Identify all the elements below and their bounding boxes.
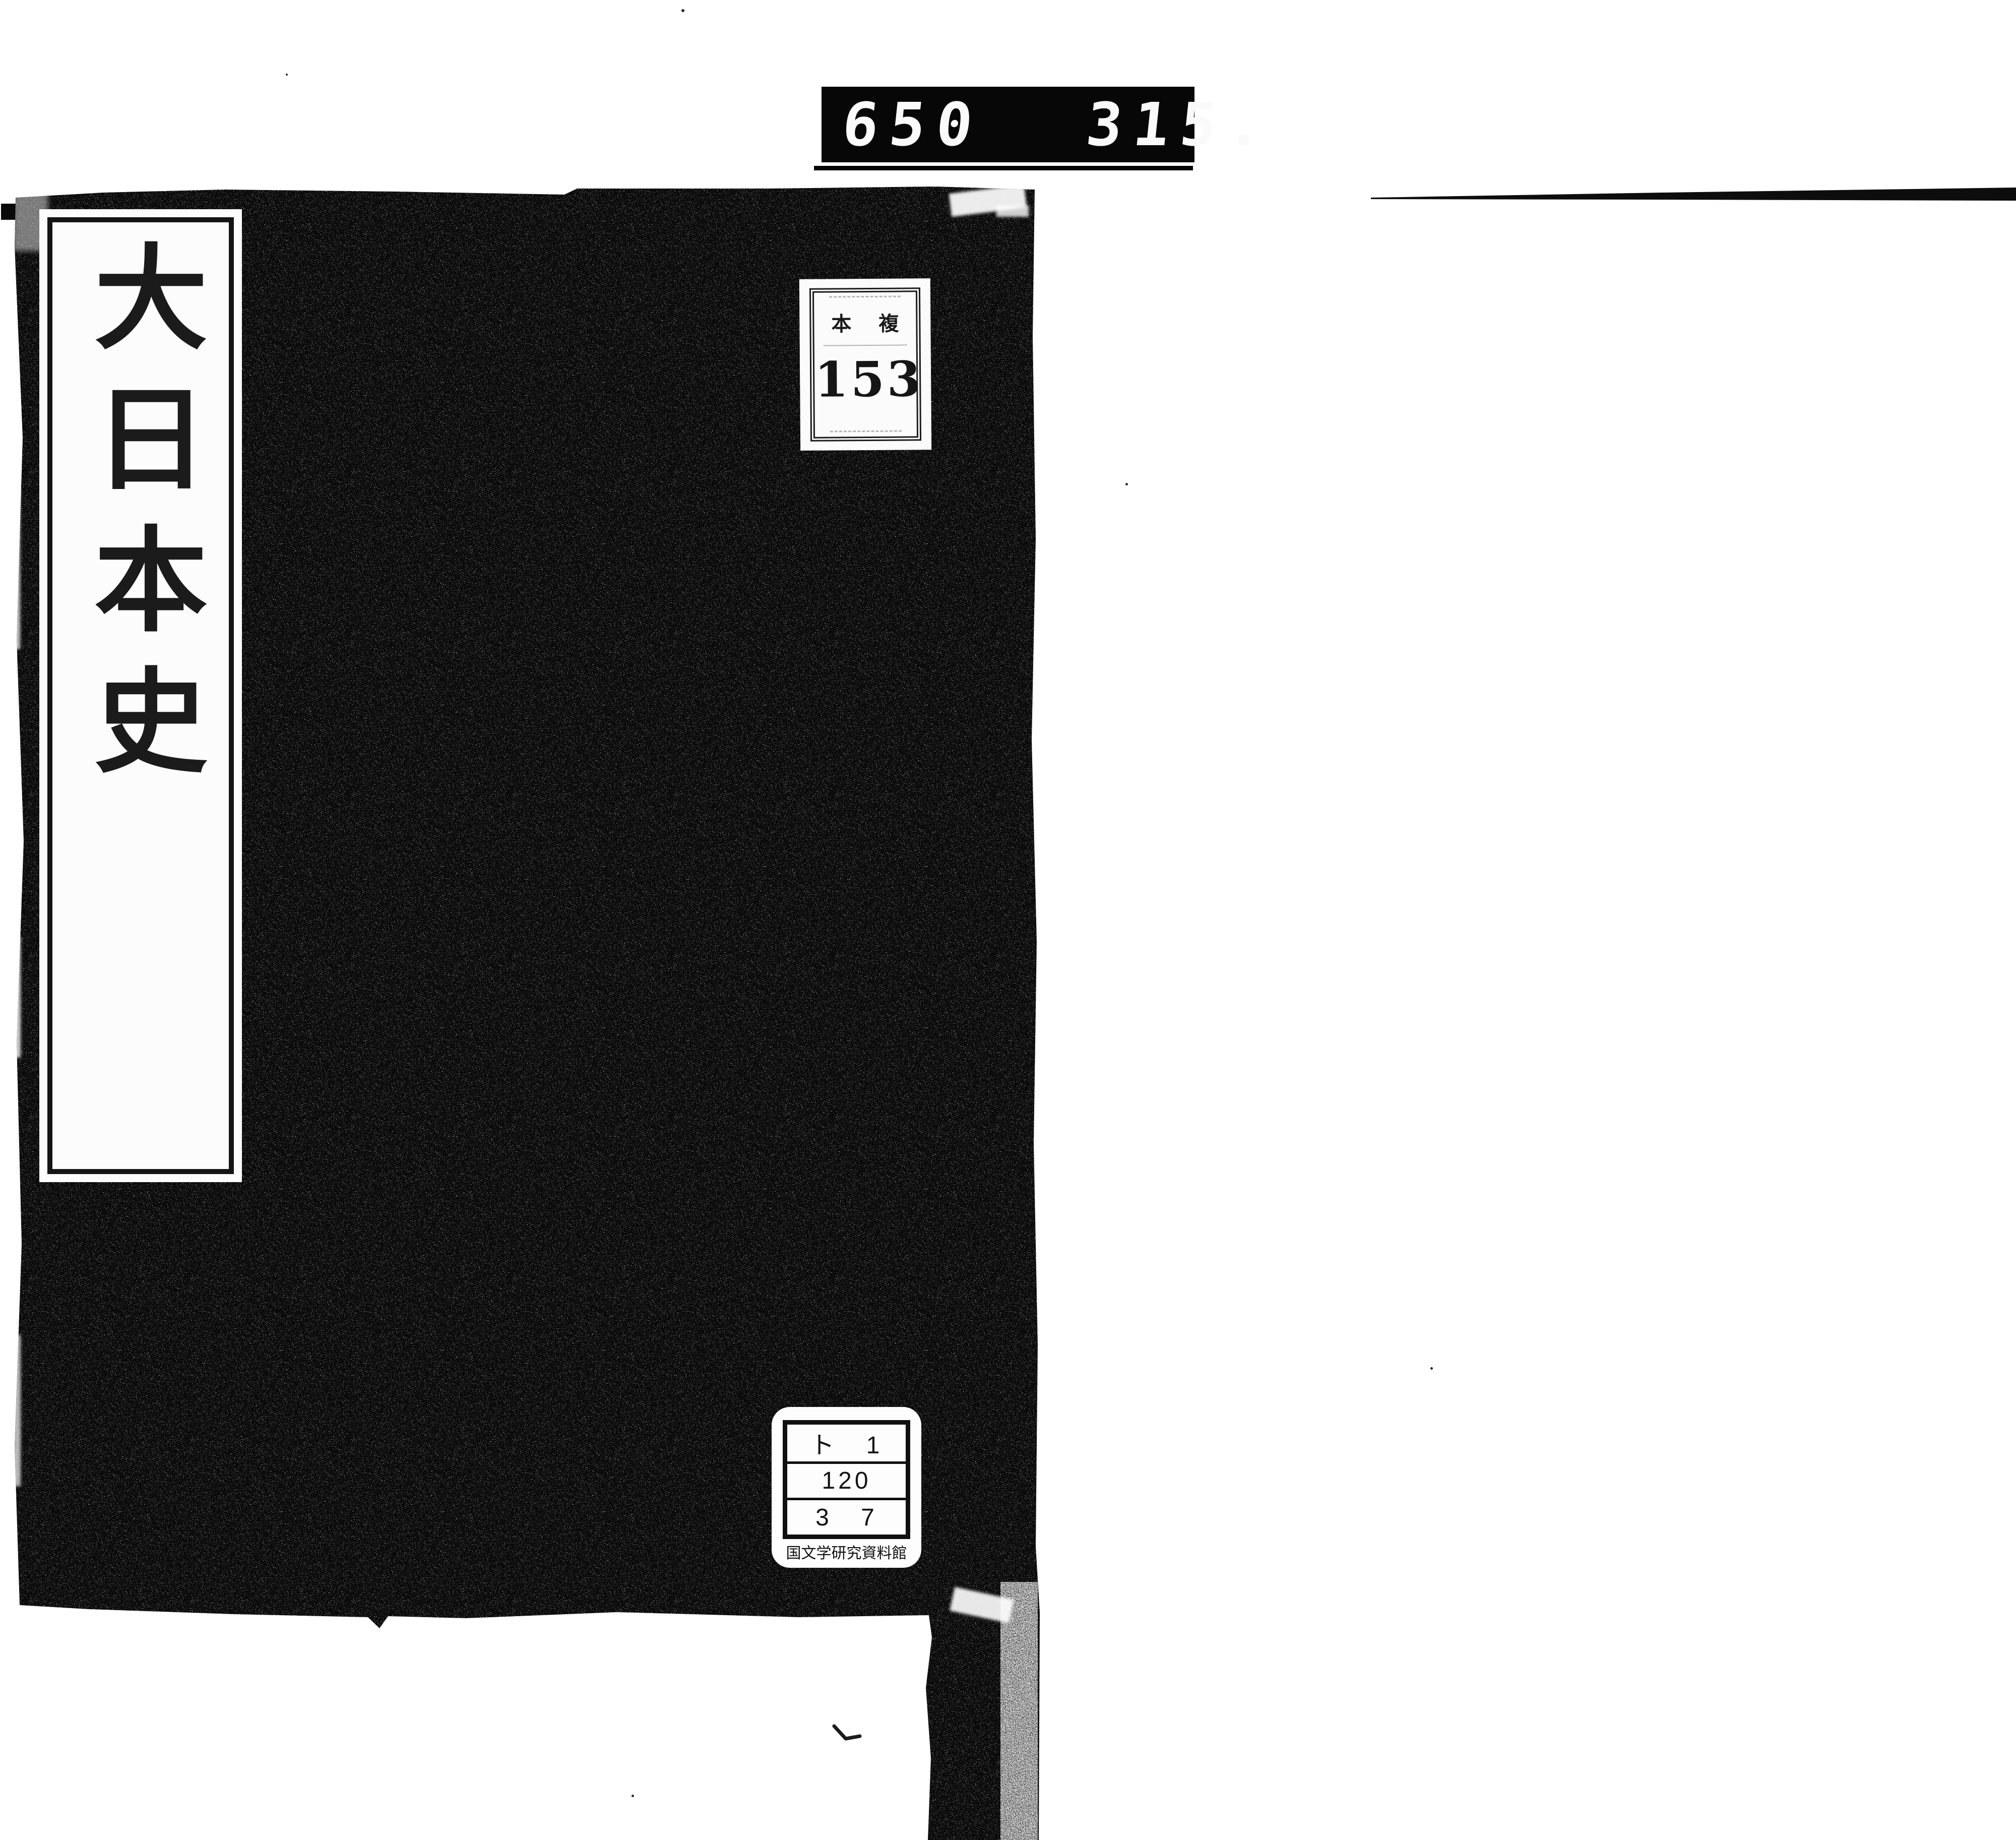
wear-patch [996,206,1029,217]
wear-patch [15,937,21,1058]
dust-speck [1125,483,1128,485]
copy-number-label: 本 複 153 [799,278,931,451]
dust-speck [632,1795,634,1797]
copy-label-left-char: 本 [831,308,851,337]
call-number-row-1: ト 1 [787,1425,906,1461]
copy-number: 153 [814,350,917,408]
institution-name: 国文学研究資料館 [772,1541,921,1563]
facing-page-edge-line [1361,181,2016,212]
call-number-row-2: 120 [787,1461,906,1498]
copy-label-frame: 本 複 153 [809,287,921,442]
library-call-number-label: ト 1 120 3 7 国文学研究資料館 [772,1407,921,1568]
copy-label-divider [824,344,907,346]
registration-dashes [830,431,901,433]
dust-speck [1430,1367,1433,1370]
registration-dashes [829,296,900,298]
counter-digits-left: 650 [840,95,987,154]
counter-digits-right: 315. [1084,95,1278,154]
book-title: 大日本史 [84,238,198,803]
frame-counter-display: 650 315. [822,87,1194,162]
call-number-row-3: 3 7 [787,1498,906,1535]
wear-patch [13,1335,21,1486]
dust-speck [681,9,684,12]
stray-check-mark [832,1723,864,1744]
call-number-table: ト 1 120 3 7 [783,1420,910,1539]
dust-speck [286,74,288,76]
counter-underline [814,166,1193,170]
wear-patch [13,488,20,649]
title-slip: 大日本史 [39,209,242,1182]
scanned-page: { "page": { "paper_color": "#ffffff", "c… [0,0,2016,1840]
book-cover: 大日本史 本 複 153 ト 1 120 3 7 国文学研究資料館 [13,186,1041,1840]
copy-label-right-char: 複 [878,308,899,337]
